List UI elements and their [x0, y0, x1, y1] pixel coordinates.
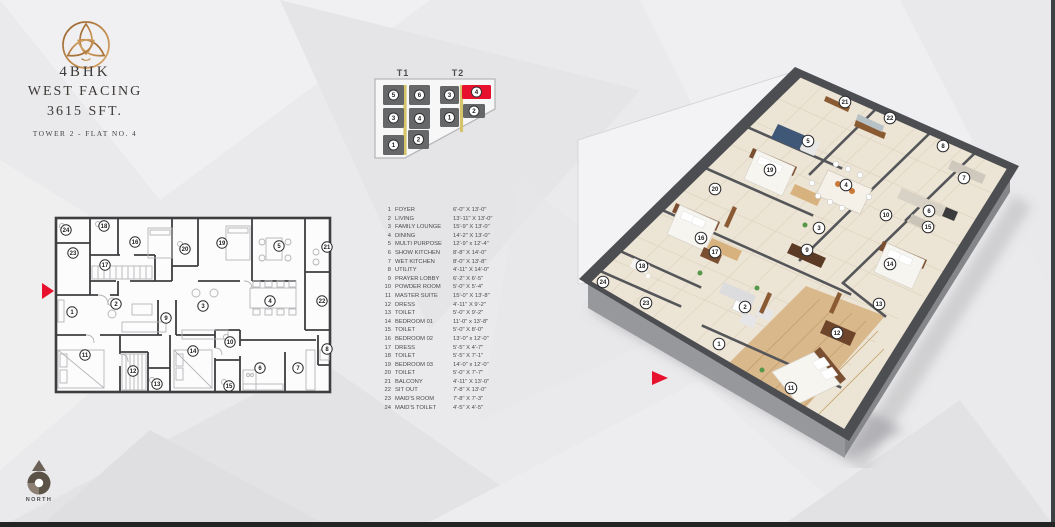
legend-room-name: TOILET [395, 369, 453, 378]
keyplan-unit-number: 6 [418, 92, 422, 99]
room-marker-number: 11 [788, 386, 795, 392]
legend-room-size: 7'-8" X 13'-0" [453, 386, 540, 395]
legend-room-size: 4'-5" X 4'-5" [453, 404, 540, 413]
legend-room-number: 11 [380, 292, 391, 301]
legend-room-number: 14 [380, 318, 391, 327]
legend-room-number: 15 [380, 326, 391, 335]
legend-room-number: 7 [380, 258, 391, 267]
legend-room-name: WET KITCHEN [395, 258, 453, 267]
legend-row: 24MAID'S TOILET4'-5" X 4'-5" [380, 404, 540, 413]
legend-row: 11MASTER SUITE15'-0" X 13'-8" [380, 292, 540, 301]
legend-room-number: 6 [380, 249, 391, 258]
keyplan-unit-number: 2 [417, 137, 421, 144]
room-marker-number: 12 [130, 369, 137, 375]
room-marker-number: 14 [190, 349, 197, 355]
legend-room-number: 23 [380, 395, 391, 404]
legend-row: 17DRESS5'-5" X 4'-7" [380, 344, 540, 353]
room-marker-number: 21 [324, 245, 331, 251]
room-marker-number: 24 [600, 280, 607, 286]
legend-room-number: 22 [380, 386, 391, 395]
brochure-page: 4BHK WEST FACING 3615 SFT. TOWER 2 - FLA… [0, 0, 1055, 527]
legend-row: 16BEDROOM 0213'-0" x 12'-0" [380, 335, 540, 344]
legend-room-size: 14'-2" X 13'-0" [453, 232, 540, 241]
legend-room-number: 19 [380, 361, 391, 370]
keyplan-tower-label: T1 [397, 68, 410, 78]
room-marker-number: 16 [132, 240, 139, 246]
legend-room-size: 4'-11" X 13'-0" [453, 378, 540, 387]
legend-room-name: UTILITY [395, 266, 453, 275]
room-marker-number: 18 [639, 264, 646, 270]
legend-room-number: 4 [380, 232, 391, 241]
room-marker-number: 15 [925, 225, 932, 231]
legend-room-name: DRESS [395, 344, 453, 353]
legend-room-number: 16 [380, 335, 391, 344]
room-marker-number: 20 [712, 187, 719, 193]
room-marker-number: 10 [227, 340, 234, 346]
legend-row: 2LIVING13'-11" X 13'-0" [380, 215, 540, 224]
legend-row: 15TOILET5'-0" X 8'-0" [380, 326, 540, 335]
legend-room-size: 5'-5" X 4'-7" [453, 344, 540, 353]
legend-room-name: FOYER [395, 206, 453, 215]
legend-room-name: LIVING [395, 215, 453, 224]
legend-row: 7WET KITCHEN8'-0" X 13'-8" [380, 258, 540, 267]
legend-room-size: 8'-8" X 14'-0" [453, 249, 540, 258]
legend-room-size: 13'-0" x 12'-0" [453, 335, 540, 344]
legend-room-number: 3 [380, 223, 391, 232]
legend-room-name: MAID'S ROOM [395, 395, 453, 404]
legend-room-size: 5'-0" X 8'-0" [453, 326, 540, 335]
legend-row: 5MULTI PURPOSE12'-9" x 12'-4" [380, 240, 540, 249]
room-marker-number: 23 [70, 251, 77, 257]
legend-room-name: DRESS [395, 301, 453, 310]
room-marker-number: 11 [82, 353, 89, 359]
red-entry-arrow-icon-2d [42, 283, 54, 299]
legend-row: 18TOILET5'-5" X 7'-1" [380, 352, 540, 361]
red-entry-arrow-icon-3d [652, 371, 668, 385]
legend-room-name: SIT OUT [395, 386, 453, 395]
room-marker-number: 24 [63, 228, 70, 234]
legend-room-number: 17 [380, 344, 391, 353]
room-marker-number: 19 [767, 168, 774, 174]
tower-key-plan: T1563412T23412 [368, 60, 503, 165]
keyplan-tower-label: T2 [452, 68, 465, 78]
legend-room-number: 1 [380, 206, 391, 215]
legend-row: 23MAID'S ROOM7'-8" X 7'-3" [380, 395, 540, 404]
legend-room-name: BALCONY [395, 378, 453, 387]
page-title-area: 3615 SFT. [0, 102, 170, 122]
plan2d-outer-walls [56, 218, 330, 392]
legend-row: 13TOILET5'-0" X 9'-2" [380, 309, 540, 318]
keyplan-unit-number: 1 [448, 115, 452, 122]
legend-room-number: 18 [380, 352, 391, 361]
legend-room-number: 10 [380, 283, 391, 292]
legend-room-name: MAID'S TOILET [395, 404, 453, 413]
legend-row: 12DRESS4'-11" X 9'-2" [380, 301, 540, 310]
floorplan-2d: 123456789101112131415161718192021222324 [40, 210, 350, 405]
legend-row: 21BALCONY4'-11" X 13'-0" [380, 378, 540, 387]
legend-row: 20TOILET5'-0" X 7'-7" [380, 369, 540, 378]
legend-room-name: POWDER ROOM [395, 283, 453, 292]
legend-room-number: 21 [380, 378, 391, 387]
legend-room-name: TOILET [395, 352, 453, 361]
legend-room-number: 24 [380, 404, 391, 413]
legend-room-name: SHOW KITCHEN [395, 249, 453, 258]
page-edge-bar-bottom [0, 522, 1055, 527]
legend-room-size: 14'-0" x 12'-0" [453, 361, 540, 370]
legend-room-size: 12'-9" x 12'-4" [453, 240, 540, 249]
legend-room-name: DINING [395, 232, 453, 241]
legend-room-size: 8'-0" X 13'-8" [453, 258, 540, 267]
legend-row: 22SIT OUT7'-8" X 13'-0" [380, 386, 540, 395]
room-marker-number: 14 [887, 262, 894, 268]
legend-room-name: TOILET [395, 326, 453, 335]
legend-room-size: 11'-0" x 13'-8" [453, 318, 540, 327]
page-title-bhk: 4BHK [0, 62, 170, 82]
compass-north-label: NORTH [16, 497, 62, 503]
floorplan-3d: 123456789101112131415161718192021222324 [570, 58, 1055, 468]
legend-room-size: 4'-11" X 9'-2" [453, 301, 540, 310]
legend-room-name: PRAYER LOBBY [395, 275, 453, 284]
legend-room-number: 20 [380, 369, 391, 378]
room-marker-number: 13 [876, 302, 883, 308]
keyplan-unit-number: 1 [392, 142, 396, 149]
room-marker-number: 20 [182, 247, 189, 253]
legend-room-number: 5 [380, 240, 391, 249]
page-title-facing: WEST FACING [0, 82, 170, 102]
legend-row: 6SHOW KITCHEN8'-8" X 14'-0" [380, 249, 540, 258]
legend-room-name: BEDROOM 03 [395, 361, 453, 370]
legend-room-size: 5'-0" X 5'-4" [453, 283, 540, 292]
room-marker-number: 19 [219, 241, 226, 247]
legend-room-number: 12 [380, 301, 391, 310]
keyplan-unit-number: 2 [472, 108, 476, 115]
legend-row: 3FAMILY LOUNGE15'-9" X 13'-0" [380, 223, 540, 232]
legend-room-number: 8 [380, 266, 391, 275]
legend-room-name: MULTI PURPOSE [395, 240, 453, 249]
room-marker-number: 15 [226, 384, 233, 390]
keyplan-unit-number: 5 [392, 92, 396, 99]
legend-room-name: BEDROOM 02 [395, 335, 453, 344]
page-subtitle-tower-flat: TOWER 2 - FLAT NO. 4 [0, 129, 170, 138]
room-marker-number: 13 [154, 382, 161, 388]
keyplan-unit-number: 4 [418, 116, 422, 123]
room-marker-number: 18 [101, 224, 108, 230]
page-edge-bar-right [1051, 0, 1055, 527]
room-marker-number: 17 [712, 250, 719, 256]
legend-row: 19BEDROOM 0314'-0" x 12'-0" [380, 361, 540, 370]
legend-row: 8UTILITY4'-11" X 14'-0" [380, 266, 540, 275]
north-compass-icon [19, 458, 59, 500]
legend-room-size: 5'-0" X 7'-7" [453, 369, 540, 378]
legend-room-number: 13 [380, 309, 391, 318]
room-marker-number: 22 [887, 116, 894, 122]
room-marker-number: 23 [643, 301, 650, 307]
room-marker-number: 17 [102, 263, 109, 269]
legend-room-name: BEDROOM 01 [395, 318, 453, 327]
room-marker-number: 10 [883, 213, 890, 219]
keyplan-unit-number: 4 [475, 89, 479, 96]
legend-room-name: TOILET [395, 309, 453, 318]
legend-room-size: 7'-8" X 7'-3" [453, 395, 540, 404]
keyplan-unit-number: 3 [392, 115, 396, 122]
legend-row: 10POWDER ROOM5'-0" X 5'-4" [380, 283, 540, 292]
room-marker-number: 12 [834, 331, 841, 337]
legend-room-name: FAMILY LOUNGE [395, 223, 453, 232]
legend-room-size: 5'-5" X 7'-1" [453, 352, 540, 361]
legend-room-size: 4'-11" X 14'-0" [453, 266, 540, 275]
brand-title-block: 4BHK WEST FACING 3615 SFT. TOWER 2 - FLA… [0, 62, 170, 138]
room-marker-number: 22 [319, 299, 326, 305]
legend-room-size: 15'-9" X 13'-0" [453, 223, 540, 232]
keyplan-unit-number: 3 [448, 92, 452, 99]
legend-room-size: 5'-0" X 9'-2" [453, 309, 540, 318]
legend-row: 9PRAYER LOBBY6'-2" X 6'-5" [380, 275, 540, 284]
legend-room-name: MASTER SUITE [395, 292, 453, 301]
legend-row: 1FOYER6'-0" X 13'-0" [380, 206, 540, 215]
legend-room-number: 9 [380, 275, 391, 284]
room-marker-number: 16 [698, 236, 705, 242]
legend-room-size: 15'-0" X 13'-8" [453, 292, 540, 301]
legend-room-size: 6'-2" X 6'-5" [453, 275, 540, 284]
room-legend: 1FOYER6'-0" X 13'-0"2LIVING13'-11" X 13'… [380, 206, 540, 412]
legend-room-size: 13'-11" X 13'-0" [453, 215, 540, 224]
legend-row: 14BEDROOM 0111'-0" x 13'-8" [380, 318, 540, 327]
room-marker-number: 21 [842, 100, 849, 106]
legend-row: 4DINING14'-2" X 13'-0" [380, 232, 540, 241]
legend-room-size: 6'-0" X 13'-0" [453, 206, 540, 215]
legend-room-number: 2 [380, 215, 391, 224]
